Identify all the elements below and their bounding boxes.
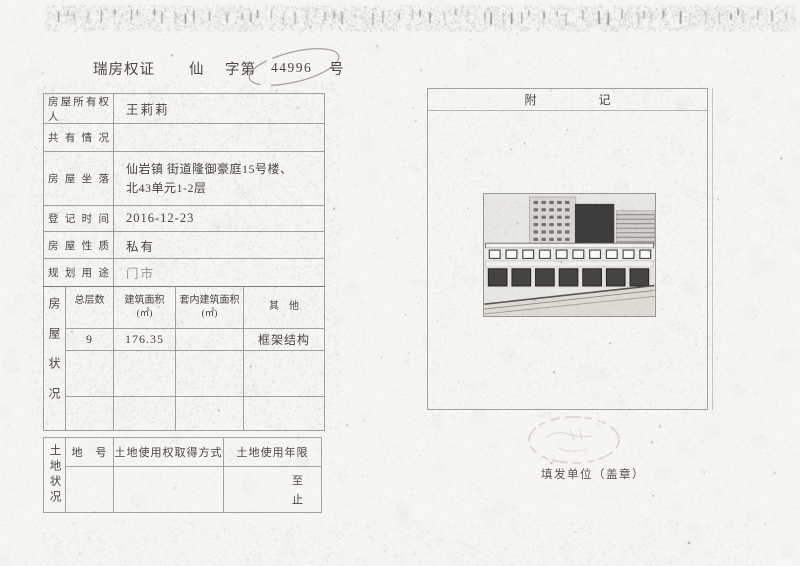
field-label-planned-use: 规划用途 [44,259,114,286]
col-header: 建筑面积 [114,294,175,308]
table-row: 共有情况 [44,124,324,152]
table-row: 规划用途 门市 [44,259,324,286]
empty-cell [176,397,243,430]
field-value-coownership [114,124,324,151]
empty-cell [114,467,223,512]
empty-cell [244,351,324,397]
value-building-area: 176.35 [114,329,175,351]
field-label-registration-date: 登记时间 [44,206,114,231]
building-photo [483,193,656,317]
address-line-2: 北43单元1-2层 [126,179,207,198]
field-value-location: 仙岩镇 街道隆御豪庭15号楼、 北43单元1-2层 [114,152,324,205]
field-label-coownership: 共有情况 [44,124,114,151]
land-status-table: 土地状况 地 号 土地使用权取得方式 土地使用年限 至 止 [43,437,322,513]
address-line-1: 仙岩镇 街道隆御豪庭15号楼、 [126,160,293,179]
field-value-house-nature: 私有 [114,232,324,258]
empty-cell [66,397,113,430]
table-row: 房屋性质 私有 [44,232,324,259]
column-plot-number: 地 号 [66,438,114,512]
owner-info-table: 房屋所有权人 王莉莉 共有情况 房屋坐落 仙岩镇 街道隆御豪庭15号楼、 北43… [43,93,325,287]
empty-cell [66,467,113,512]
field-label-house-nature: 房屋性质 [44,232,114,258]
term-to-char: 至 [292,472,303,488]
term-end-char: 止 [292,491,303,507]
property-certificate-scan: 瑞房权证 仙 字第 44996 号 房屋所有权人 王莉莉 共有情况 房屋坐落 仙… [0,0,800,566]
empty-cell [244,397,324,430]
land-status-side-label: 土地状况 [44,438,66,512]
column-building-area: 建筑面积(㎡) 176.35 [114,287,176,430]
column-total-floors: 总层数 9 [66,287,114,430]
column-land-use-term: 土地使用年限 至 止 [224,438,321,512]
field-value-registration-date: 2016-12-23 [114,206,324,231]
empty-cell [176,351,243,397]
value-inner-area [176,329,243,351]
col-header: 总层数 [66,294,113,308]
col-header: 套内建筑面积 [176,294,243,308]
official-seal-faint [512,412,642,470]
table-row: 房屋坐落 仙岩镇 街道隆御豪庭15号楼、 北43单元1-2层 [44,152,324,206]
annex-box: 附 记 [427,88,708,410]
house-status-side-label: 房屋状况 [44,287,66,430]
issuer-label: 填发单位（盖章） [541,466,645,482]
title-prefix: 瑞房权证 [93,58,155,79]
empty-cell [114,351,175,397]
house-status-grid: 总层数 9 建筑面积(㎡) 176.35 套内建筑面积(㎡) 其 他 框架结构 [66,287,324,430]
table-row: 房屋所有权人 王莉莉 [44,94,324,124]
value-structure-type: 框架结构 [244,329,324,351]
value-total-floors: 9 [66,329,113,351]
column-other: 其 他 框架结构 [244,287,324,430]
column-land-right-method: 土地使用权取得方式 [114,438,224,512]
outer-edge-line [712,88,713,410]
field-value-planned-use: 门市 [114,259,324,286]
empty-cell [66,351,113,397]
table-row: 登记时间 2016-12-23 [44,206,324,232]
annex-header: 附 记 [428,89,707,111]
land-status-grid: 地 号 土地使用权取得方式 土地使用年限 至 止 [66,438,321,512]
field-label-owner: 房屋所有权人 [44,94,114,123]
handdrawn-oval-annotation [238,40,362,94]
field-value-owner: 王莉莉 [114,94,324,123]
column-inner-area: 套内建筑面积(㎡) [176,287,244,430]
col-header: 其 他 [244,300,324,314]
empty-cell [114,397,175,430]
field-label-location: 房屋坐落 [44,152,114,205]
col-header: 土地使用年限 [224,438,321,467]
col-header: 地 号 [66,438,113,467]
house-status-table: 房屋状况 总层数 9 建筑面积(㎡) 176.35 套内建筑面积(㎡) [43,286,325,431]
title-zone-char: 仙 [189,58,205,79]
col-header: 土地使用权取得方式 [114,438,223,467]
